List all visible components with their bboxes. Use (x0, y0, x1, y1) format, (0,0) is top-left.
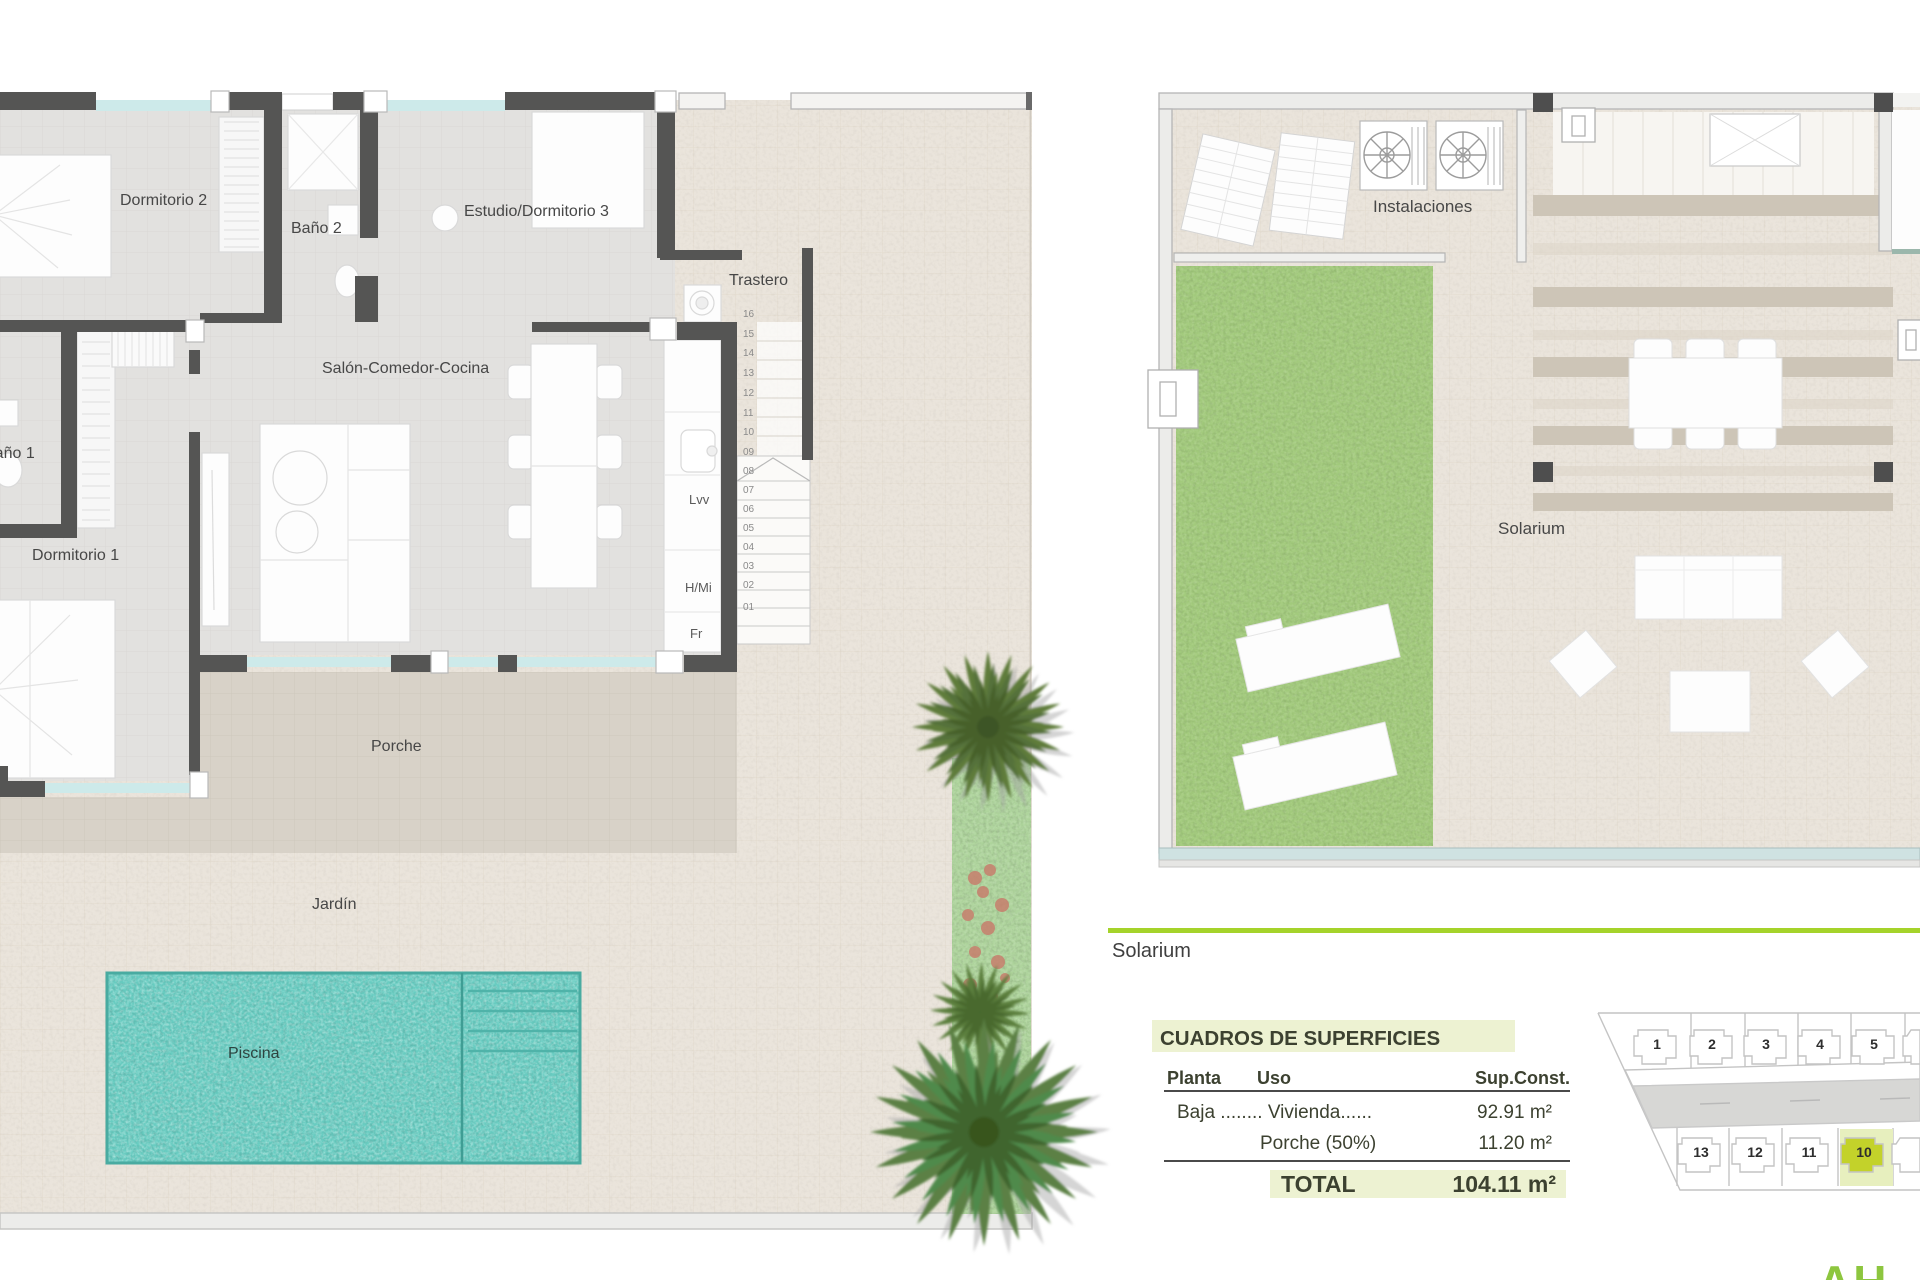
svg-text:08: 08 (743, 466, 755, 477)
svg-text:11.20 m²: 11.20 m² (1478, 1133, 1552, 1154)
svg-text:Instalaciones: Instalaciones (1373, 197, 1472, 216)
svg-text:Jardín: Jardín (312, 896, 356, 913)
svg-text:15: 15 (743, 329, 755, 340)
svg-text:Baño 2: Baño 2 (291, 220, 342, 237)
svg-text:Porche (50%): Porche (50%) (1260, 1133, 1376, 1154)
svg-text:Dormitorio 2: Dormitorio 2 (120, 192, 207, 209)
svg-text:12: 12 (743, 388, 755, 399)
svg-text:3: 3 (1762, 1036, 1770, 1052)
svg-text:Estudio/Dormitorio 3: Estudio/Dormitorio 3 (464, 203, 609, 220)
svg-text:03: 03 (743, 561, 755, 572)
svg-text:05: 05 (743, 523, 755, 534)
svg-text:11: 11 (1802, 1144, 1817, 1160)
svg-text:4: 4 (1816, 1036, 1824, 1052)
svg-text:104.11 m²: 104.11 m² (1452, 1171, 1556, 1197)
svg-text:2: 2 (1708, 1036, 1716, 1052)
svg-text:CUADROS DE SUPERFICIES: CUADROS DE SUPERFICIES (1160, 1027, 1440, 1050)
svg-text:04: 04 (743, 542, 755, 553)
svg-text:Trastero: Trastero (729, 272, 788, 289)
svg-text:07: 07 (743, 485, 755, 496)
svg-text:5: 5 (1870, 1036, 1878, 1052)
svg-text:02: 02 (743, 580, 755, 591)
svg-text:09: 09 (743, 447, 755, 458)
svg-text:TOTAL: TOTAL (1281, 1171, 1356, 1197)
svg-text:Solarium: Solarium (1112, 940, 1191, 962)
svg-text:13: 13 (743, 368, 755, 379)
svg-text:Planta: Planta (1167, 1068, 1222, 1088)
svg-text:AH: AH (1818, 1256, 1888, 1280)
svg-text:1: 1 (1653, 1036, 1661, 1052)
svg-text:01: 01 (743, 602, 755, 613)
svg-text:10: 10 (743, 427, 755, 438)
svg-text:H/Mi: H/Mi (685, 580, 712, 595)
svg-text:92.91 m²: 92.91 m² (1477, 1102, 1552, 1123)
svg-text:14: 14 (743, 348, 755, 359)
svg-text:Porche: Porche (371, 738, 422, 755)
svg-text:Sup.Const.: Sup.Const. (1475, 1068, 1570, 1088)
svg-text:16: 16 (743, 309, 755, 320)
svg-text:11: 11 (743, 408, 754, 419)
svg-text:06: 06 (743, 504, 755, 515)
svg-text:12: 12 (1747, 1144, 1763, 1160)
svg-text:Uso: Uso (1257, 1068, 1291, 1088)
svg-text:Fr: Fr (690, 626, 703, 641)
svg-text:10: 10 (1856, 1144, 1872, 1160)
svg-text:Lvv: Lvv (689, 492, 710, 507)
svg-text:Baja ........ Vivienda......: Baja ........ Vivienda...... (1177, 1102, 1372, 1123)
svg-text:Solarium: Solarium (1498, 519, 1565, 538)
svg-text:Baño 1: Baño 1 (0, 445, 35, 462)
svg-text:Dormitorio 1: Dormitorio 1 (32, 547, 119, 564)
svg-text:13: 13 (1693, 1144, 1709, 1160)
svg-text:Salón-Comedor-Cocina: Salón-Comedor-Cocina (322, 360, 489, 377)
svg-text:Piscina: Piscina (228, 1045, 280, 1062)
